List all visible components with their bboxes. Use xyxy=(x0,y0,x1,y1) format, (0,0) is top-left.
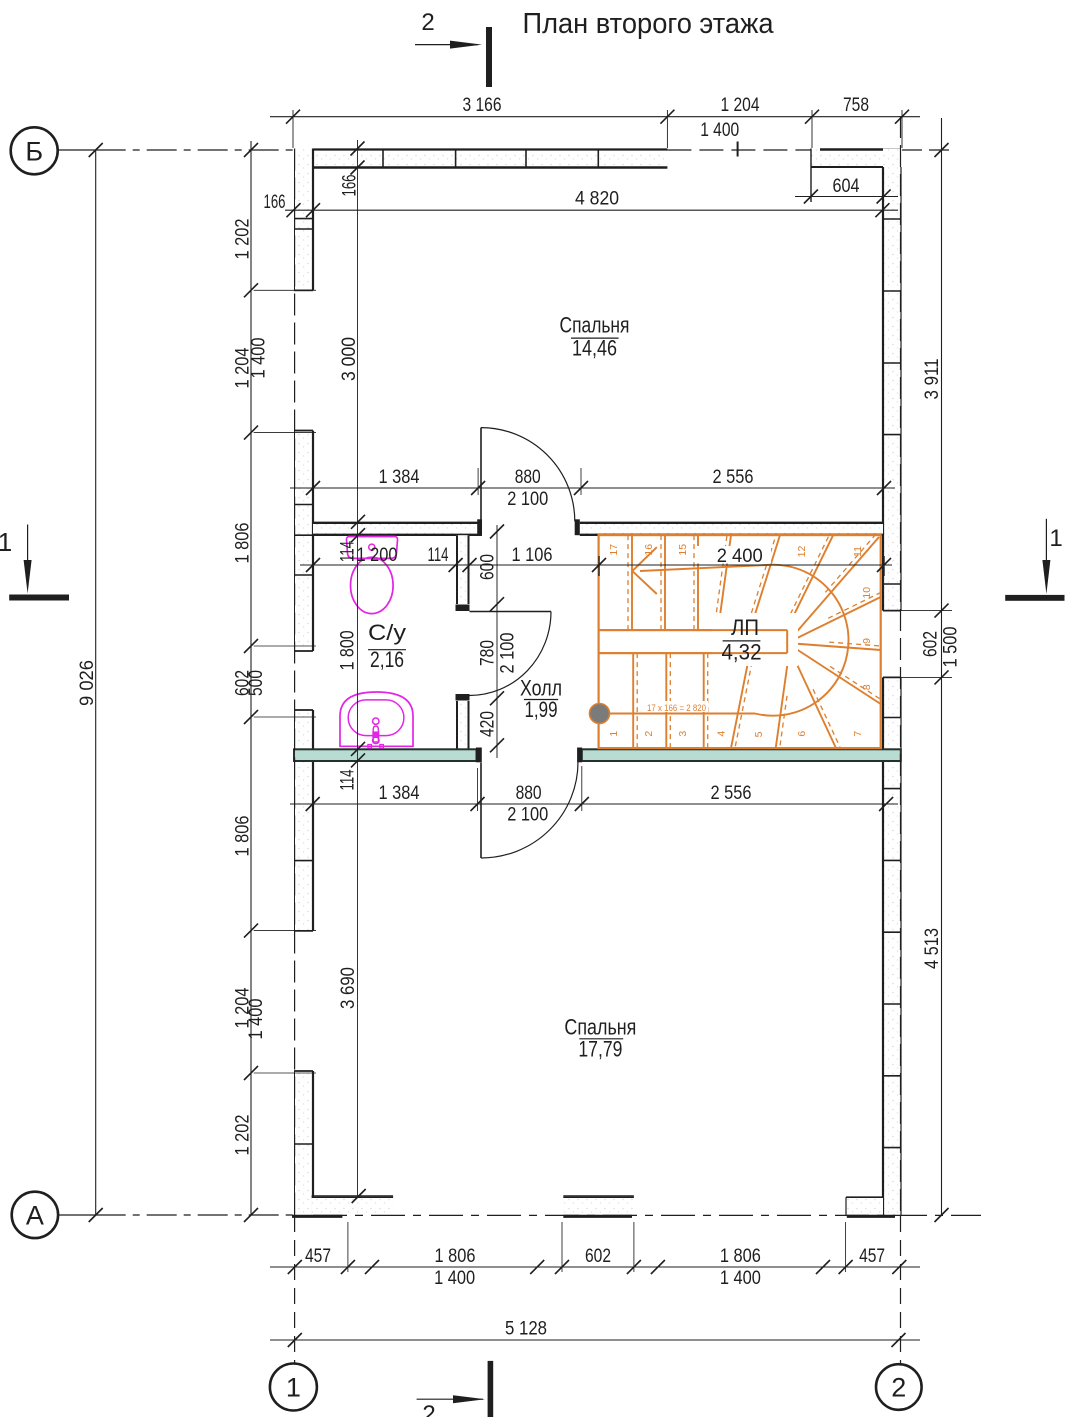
svg-text:758: 758 xyxy=(843,95,869,116)
svg-text:2 100: 2 100 xyxy=(498,633,519,674)
svg-text:Б: Б xyxy=(25,137,43,167)
svg-text:1 806: 1 806 xyxy=(720,1246,761,1267)
svg-text:1 500: 1 500 xyxy=(941,627,962,668)
svg-text:457: 457 xyxy=(305,1246,331,1267)
svg-text:1: 1 xyxy=(1049,525,1062,552)
svg-text:4,32: 4,32 xyxy=(722,640,762,665)
svg-text:16: 16 xyxy=(643,544,655,556)
svg-text:17: 17 xyxy=(608,544,620,556)
svg-text:600: 600 xyxy=(478,554,499,580)
svg-text:6: 6 xyxy=(796,731,808,737)
svg-text:1 806: 1 806 xyxy=(435,1246,476,1267)
svg-text:500: 500 xyxy=(246,670,267,696)
svg-text:3 690: 3 690 xyxy=(338,967,359,1009)
svg-text:1 800: 1 800 xyxy=(338,630,359,670)
svg-text:2,16: 2,16 xyxy=(370,647,404,672)
svg-text:166: 166 xyxy=(340,175,361,197)
svg-text:1 400: 1 400 xyxy=(720,1268,761,1289)
svg-text:457: 457 xyxy=(859,1246,885,1267)
svg-text:15: 15 xyxy=(677,544,689,556)
svg-text:880: 880 xyxy=(515,467,541,488)
svg-text:4 820: 4 820 xyxy=(575,189,619,210)
svg-text:1 806: 1 806 xyxy=(233,523,254,564)
svg-text:А: А xyxy=(26,1201,44,1231)
svg-text:Спальня: Спальня xyxy=(560,313,630,338)
svg-text:ЛП: ЛП xyxy=(731,615,759,640)
svg-text:С/у: С/у xyxy=(368,620,407,645)
svg-text:114: 114 xyxy=(338,541,359,562)
svg-text:2 100: 2 100 xyxy=(507,805,548,826)
svg-text:1 400: 1 400 xyxy=(246,999,267,1040)
svg-text:1: 1 xyxy=(0,527,12,557)
svg-text:1 400: 1 400 xyxy=(249,338,270,379)
svg-text:166: 166 xyxy=(264,192,286,213)
svg-text:3 911: 3 911 xyxy=(922,359,943,400)
svg-text:114: 114 xyxy=(338,769,359,790)
svg-text:2: 2 xyxy=(422,1401,435,1417)
svg-text:11: 11 xyxy=(852,546,864,557)
svg-text:602: 602 xyxy=(921,631,942,657)
svg-text:1 806: 1 806 xyxy=(233,816,254,857)
svg-text:880: 880 xyxy=(516,783,542,804)
svg-text:420: 420 xyxy=(477,711,498,737)
svg-text:4 513: 4 513 xyxy=(922,928,943,969)
svg-text:9 026: 9 026 xyxy=(77,660,98,706)
svg-text:План второго этажа: План второго этажа xyxy=(523,8,775,40)
svg-text:17 x 166 = 2 820: 17 x 166 = 2 820 xyxy=(647,703,706,714)
svg-text:2 556: 2 556 xyxy=(713,467,754,488)
svg-text:2 400: 2 400 xyxy=(717,546,763,567)
svg-text:2: 2 xyxy=(643,731,655,737)
svg-text:1 384: 1 384 xyxy=(379,783,420,804)
svg-text:8: 8 xyxy=(861,684,873,690)
svg-text:5 128: 5 128 xyxy=(505,1319,547,1340)
svg-text:14,46: 14,46 xyxy=(572,336,617,361)
svg-text:1,99: 1,99 xyxy=(525,697,558,722)
svg-text:2 100: 2 100 xyxy=(507,489,548,510)
svg-text:1 200: 1 200 xyxy=(357,545,398,566)
svg-text:2 556: 2 556 xyxy=(711,783,752,804)
svg-text:780: 780 xyxy=(477,640,498,666)
svg-text:1 202: 1 202 xyxy=(233,1115,254,1156)
svg-text:1 400: 1 400 xyxy=(700,120,739,141)
svg-text:7: 7 xyxy=(852,731,864,737)
svg-text:9: 9 xyxy=(861,638,873,644)
svg-text:5: 5 xyxy=(753,731,765,737)
svg-text:114: 114 xyxy=(428,545,449,566)
svg-text:3 166: 3 166 xyxy=(463,95,502,116)
svg-text:604: 604 xyxy=(833,176,860,197)
svg-text:4: 4 xyxy=(715,731,727,737)
svg-text:2: 2 xyxy=(891,1373,906,1403)
svg-text:1: 1 xyxy=(286,1373,301,1403)
svg-text:1 384: 1 384 xyxy=(379,467,420,488)
svg-text:1 106: 1 106 xyxy=(512,545,553,566)
svg-text:602: 602 xyxy=(585,1246,611,1267)
svg-text:1 400: 1 400 xyxy=(434,1268,475,1289)
svg-text:2: 2 xyxy=(421,9,434,36)
svg-text:3: 3 xyxy=(677,731,689,737)
svg-text:12: 12 xyxy=(796,546,808,558)
svg-text:3 000: 3 000 xyxy=(339,337,360,381)
svg-text:17,79: 17,79 xyxy=(578,1036,622,1061)
svg-text:1 204: 1 204 xyxy=(721,95,760,116)
svg-text:1: 1 xyxy=(608,731,620,737)
svg-text:1 202: 1 202 xyxy=(233,219,254,260)
svg-text:10: 10 xyxy=(861,587,873,599)
